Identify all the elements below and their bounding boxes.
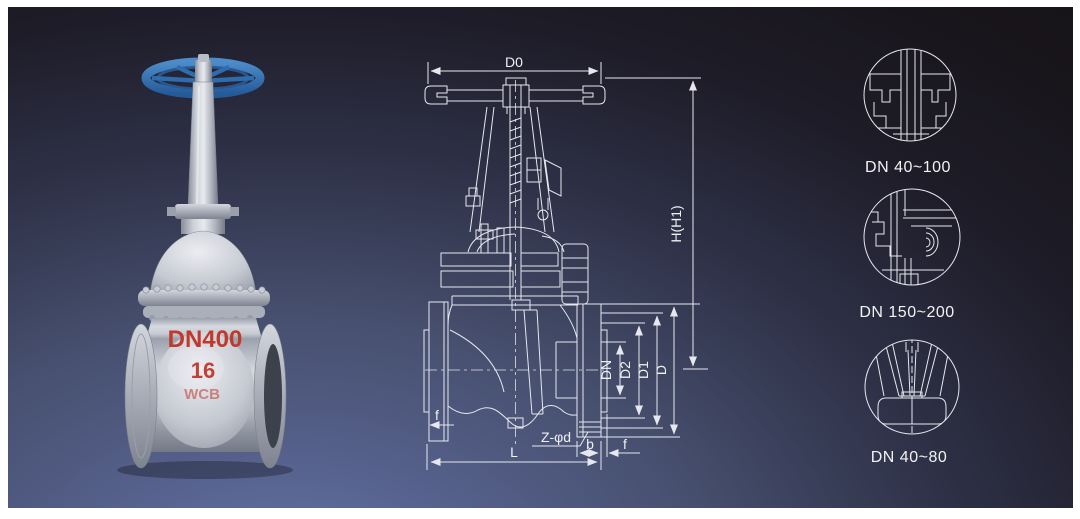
- dim-h: H(H1): [668, 205, 684, 242]
- detail-label-3: DN 40~80: [871, 449, 948, 466]
- marking-pressure: 16: [191, 358, 215, 383]
- drawing-bonnet: [441, 224, 588, 305]
- dim-d2: D2: [617, 361, 633, 379]
- dim-d: D: [653, 365, 669, 375]
- dim-d0: D0: [505, 54, 523, 70]
- dim-dn: DN: [598, 360, 614, 380]
- wheel-hub: [195, 60, 212, 84]
- detail-label-1: DN 40~100: [865, 159, 951, 176]
- valve-illustration-svg: DN400 16 WCB: [8, 7, 1073, 508]
- detail-label-2: DN 150~200: [859, 304, 954, 321]
- gradient-canvas: DN400 16 WCB: [8, 7, 1073, 508]
- marking-size: DN400: [168, 326, 243, 353]
- dim-f-right: f: [623, 436, 627, 452]
- drawing-yoke-stem: [466, 85, 561, 300]
- detail-circle-2: [864, 189, 960, 286]
- dim-z-phi-d: Z-φd: [541, 429, 571, 445]
- bonnet-flange: [138, 284, 270, 323]
- stem-nut: [198, 54, 209, 62]
- yoke-flange: [175, 204, 231, 219]
- dim-f-left: f: [435, 407, 439, 423]
- stem-column: [188, 82, 218, 206]
- detail-circle-3: [865, 336, 959, 436]
- detail-circle-1: [864, 49, 956, 141]
- right-flange-bore: [264, 344, 282, 448]
- dim-l: L: [510, 444, 518, 460]
- catalog-image: DN400 16 WCB: [0, 0, 1080, 519]
- dim-d1: D1: [635, 361, 651, 379]
- detail-views: DN 40~100 DN 150~200 DN 40~80: [859, 49, 960, 466]
- valve-photo: DN400 16 WCB: [117, 54, 293, 479]
- technical-drawing: D0 H(H1) DN D2 D1 D f Z-φd b f L: [424, 54, 708, 470]
- left-flange: [125, 324, 157, 468]
- marking-material: WCB: [184, 386, 220, 403]
- dim-b: b: [586, 436, 594, 452]
- drawing-handwheel: [425, 78, 605, 114]
